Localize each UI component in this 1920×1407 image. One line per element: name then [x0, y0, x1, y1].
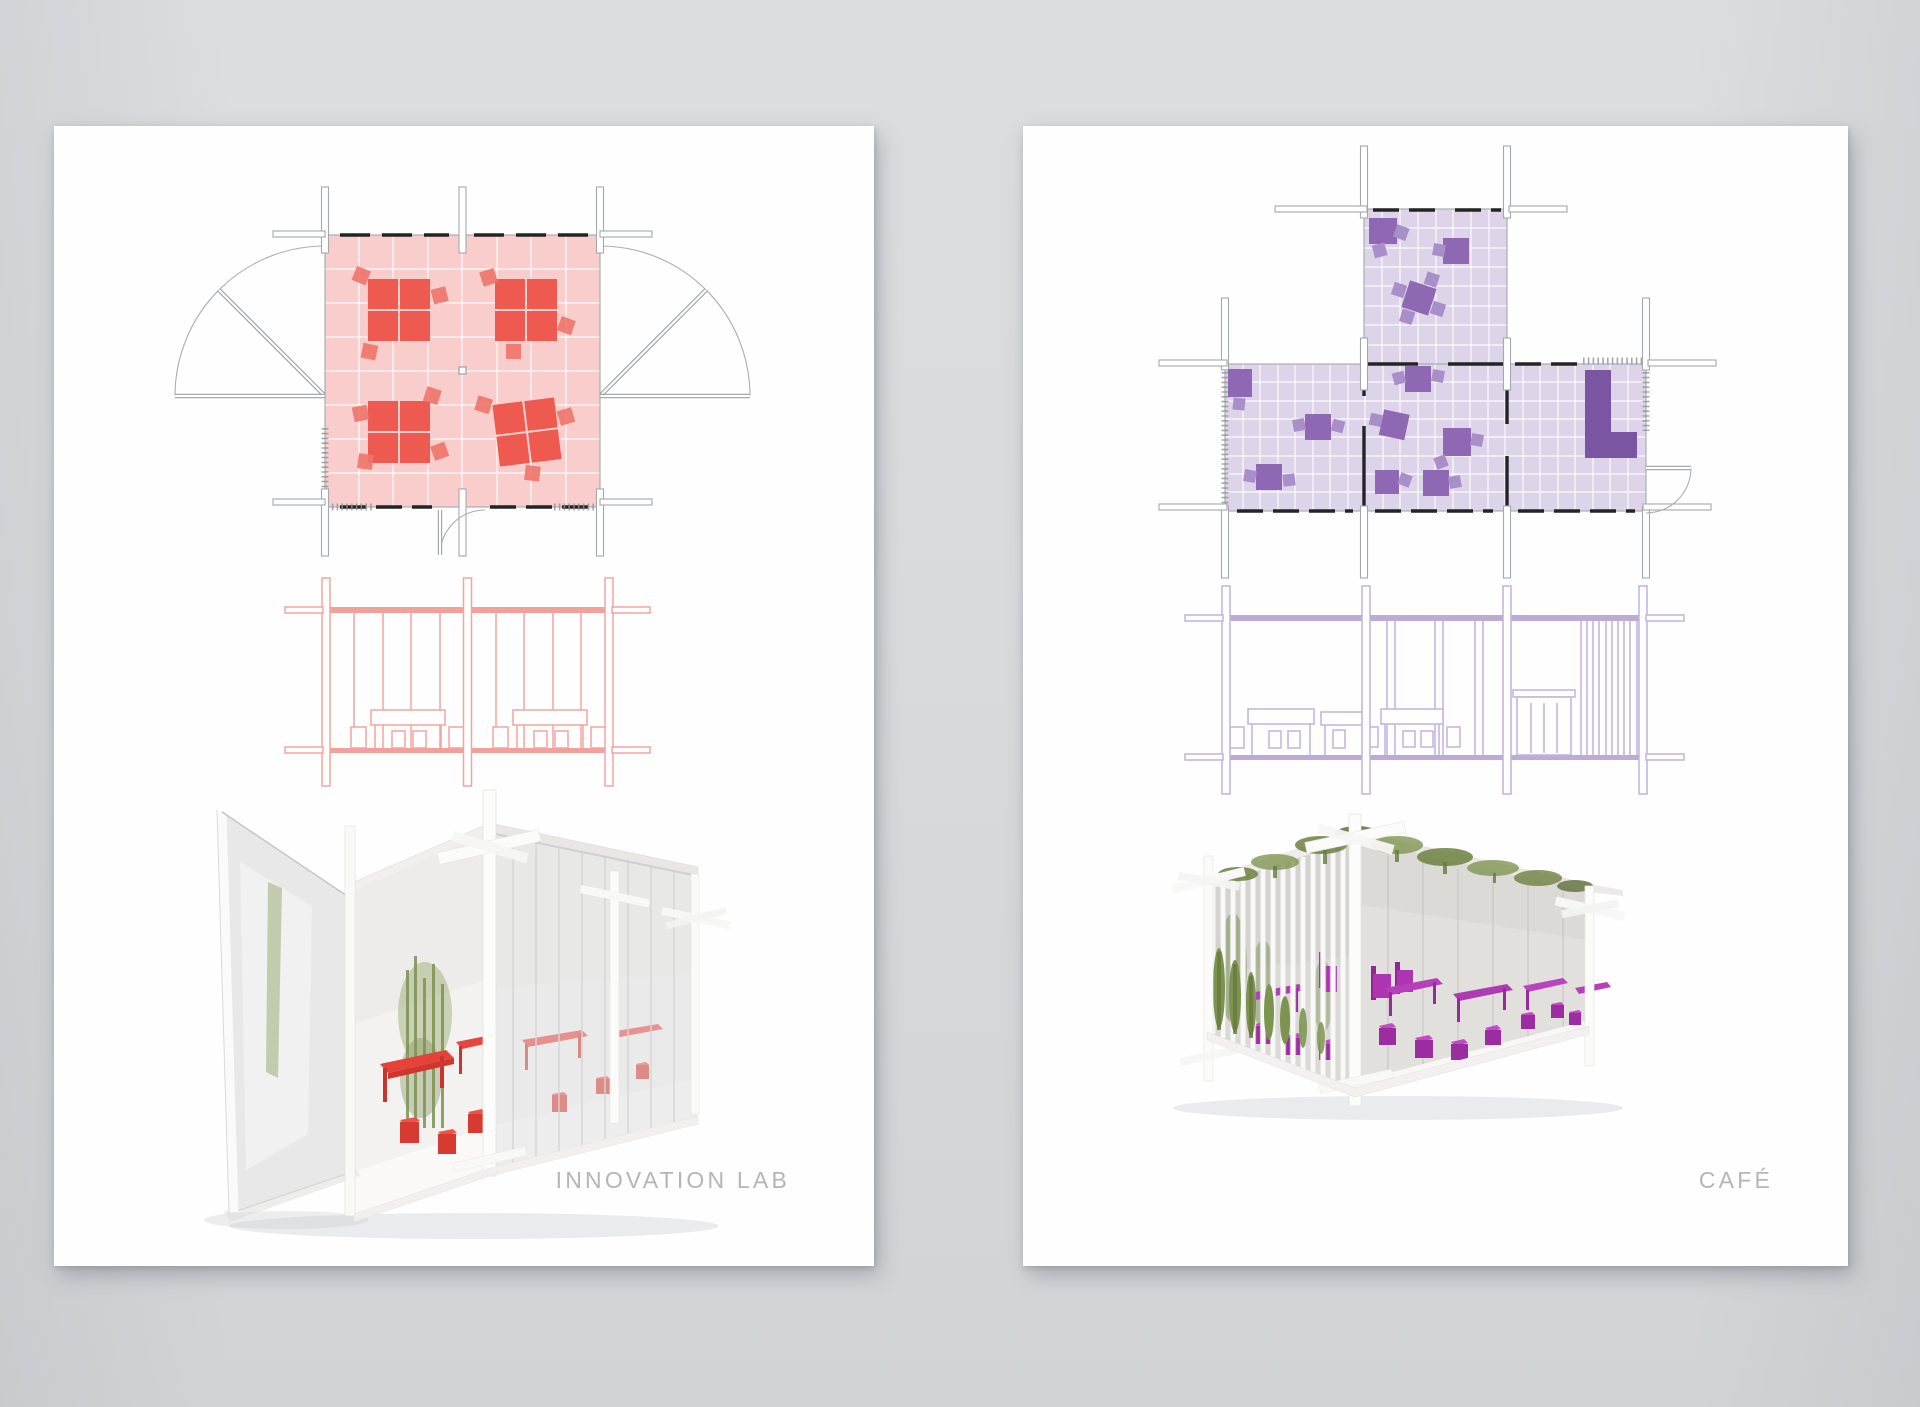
- board-innovation-lab: INNOVATION LAB: [54, 126, 874, 1266]
- elevation: [285, 578, 650, 786]
- elevation: [1185, 586, 1684, 794]
- center-column-marker: [459, 367, 466, 374]
- render-plant: [398, 956, 452, 1128]
- floor-plan: [1159, 146, 1716, 578]
- door-swing-right: [600, 246, 750, 396]
- elevation-furniture: [351, 710, 606, 748]
- board-label-cafe: CAFÉ: [1699, 1167, 1773, 1193]
- cafe-drawings: CAFÉ: [1023, 126, 1848, 1266]
- render-open-door-panel: [217, 810, 360, 1222]
- perspective-render: [1172, 814, 1625, 1120]
- innovation-lab-drawings: INNOVATION LAB: [54, 126, 874, 1266]
- render-glass-wall: [490, 833, 698, 1168]
- presentation-canvas: INNOVATION LAB: [0, 0, 1920, 1407]
- elevation-furniture: [1230, 690, 1575, 755]
- floor-plan: [175, 187, 750, 556]
- board-cafe: CAFÉ: [1023, 126, 1848, 1266]
- board-label-innovation-lab: INNOVATION LAB: [556, 1167, 790, 1193]
- door-swing-left: [175, 246, 325, 396]
